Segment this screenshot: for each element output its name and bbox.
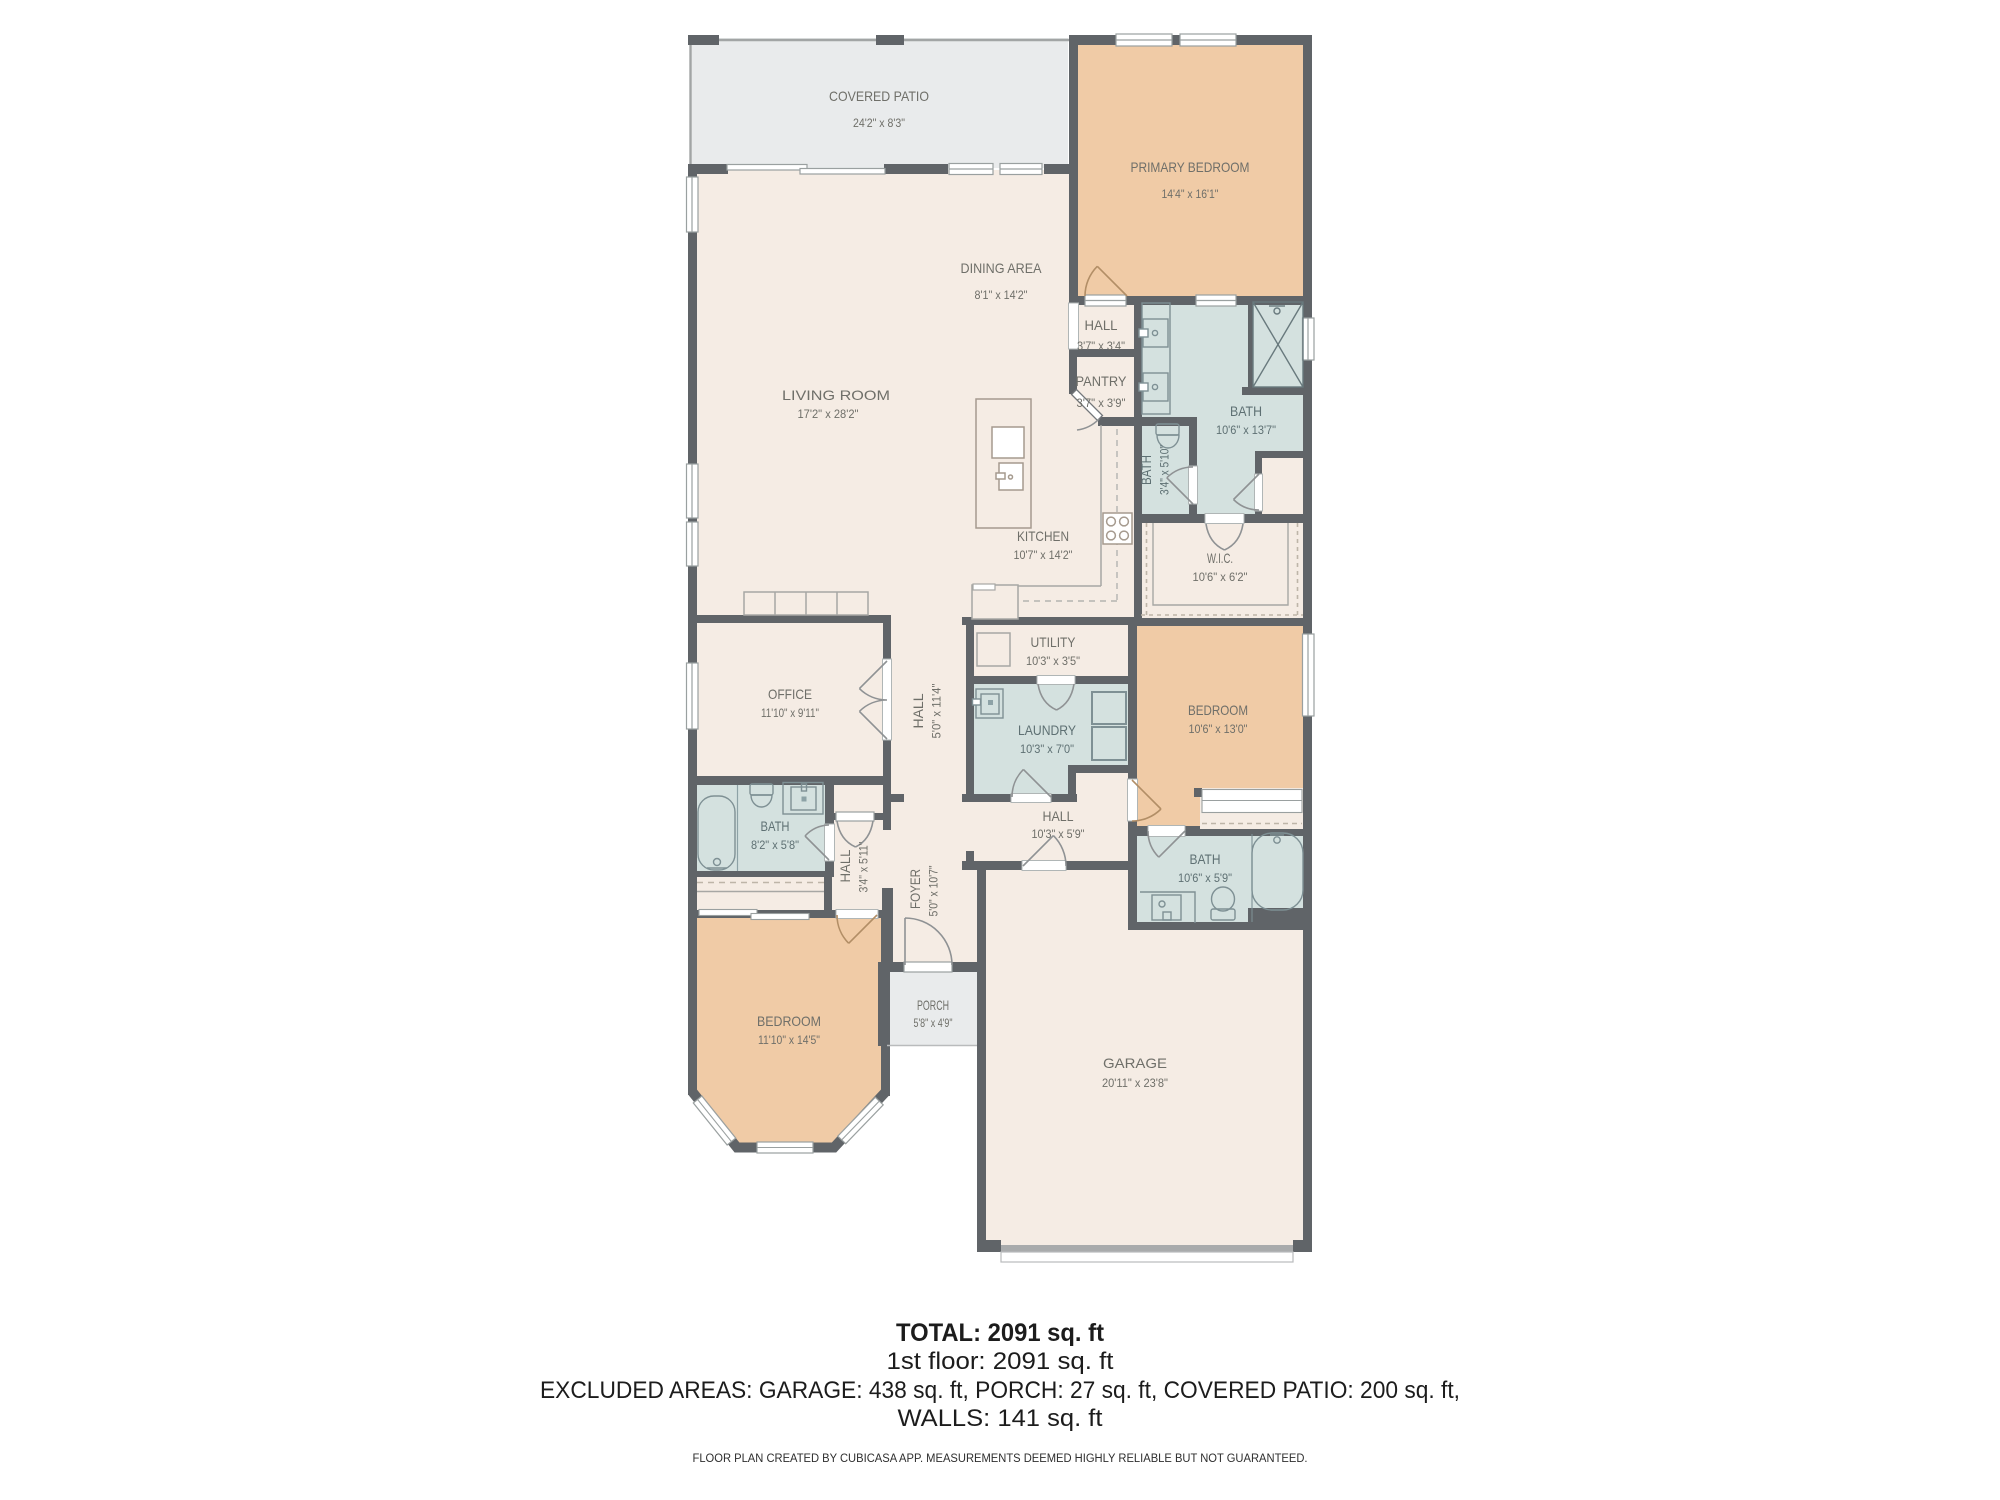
svg-text:10'3" x 3'5": 10'3" x 3'5": [1026, 654, 1080, 668]
svg-text:FLOOR PLAN CREATED BY CUBICASA: FLOOR PLAN CREATED BY CUBICASA APP. MEAS…: [693, 1453, 1308, 1465]
svg-text:PRIMARY BEDROOM: PRIMARY BEDROOM: [1131, 159, 1250, 175]
svg-text:BATH: BATH: [761, 818, 790, 834]
svg-text:8'1" x 14'2": 8'1" x 14'2": [975, 288, 1028, 302]
svg-text:10'6" x 6'2": 10'6" x 6'2": [1193, 570, 1248, 584]
svg-text:GARAGE: GARAGE: [1103, 1055, 1167, 1071]
svg-text:11'10" x 9'11": 11'10" x 9'11": [761, 706, 819, 720]
svg-text:3'7" x 3'4": 3'7" x 3'4": [1077, 339, 1125, 353]
svg-text:BATH: BATH: [1230, 403, 1262, 419]
svg-text:HALL: HALL: [837, 849, 853, 882]
svg-text:PORCH: PORCH: [917, 997, 949, 1013]
svg-text:HALL: HALL: [1085, 317, 1118, 333]
svg-text:BATH: BATH: [1138, 455, 1154, 485]
svg-text:10'3" x 5'9": 10'3" x 5'9": [1032, 827, 1085, 841]
svg-text:W.I.C.: W.I.C.: [1207, 550, 1233, 566]
svg-text:BATH: BATH: [1190, 851, 1221, 867]
svg-text:8'2" x 5'8": 8'2" x 5'8": [751, 838, 799, 852]
svg-text:10'6" x 13'0": 10'6" x 13'0": [1189, 722, 1248, 736]
svg-text:WALLS: 141 sq. ft: WALLS: 141 sq. ft: [898, 1405, 1103, 1432]
svg-text:DINING AREA: DINING AREA: [961, 260, 1043, 276]
svg-text:TOTAL: 2091 sq. ft: TOTAL: 2091 sq. ft: [896, 1319, 1105, 1347]
svg-text:LAUNDRY: LAUNDRY: [1018, 722, 1077, 738]
svg-text:HALL: HALL: [910, 693, 926, 728]
svg-text:10'6" x 5'9": 10'6" x 5'9": [1178, 871, 1232, 885]
svg-text:11'10" x 14'5": 11'10" x 14'5": [758, 1033, 820, 1047]
svg-text:3'7" x 3'9": 3'7" x 3'9": [1077, 396, 1126, 410]
svg-text:3'4" x 5'10": 3'4" x 5'10": [1158, 445, 1172, 495]
svg-text:BEDROOM: BEDROOM: [1188, 702, 1248, 718]
svg-text:10'6" x 13'7": 10'6" x 13'7": [1216, 423, 1276, 437]
svg-text:HALL: HALL: [1043, 808, 1074, 824]
svg-text:BEDROOM: BEDROOM: [757, 1013, 821, 1029]
svg-text:5'8" x 4'9": 5'8" x 4'9": [914, 1016, 953, 1030]
svg-text:PANTRY: PANTRY: [1076, 373, 1128, 389]
svg-text:LIVING ROOM: LIVING ROOM: [782, 387, 890, 403]
svg-text:14'4" x 16'1": 14'4" x 16'1": [1162, 187, 1219, 201]
svg-text:COVERED PATIO: COVERED PATIO: [829, 88, 929, 104]
svg-text:FOYER: FOYER: [907, 869, 923, 909]
svg-text:UTILITY: UTILITY: [1031, 634, 1077, 650]
svg-text:17'2" x 28'2": 17'2" x 28'2": [798, 407, 859, 421]
svg-text:10'7" x 14'2": 10'7" x 14'2": [1014, 548, 1073, 562]
svg-text:EXCLUDED AREAS: GARAGE: 438 sq: EXCLUDED AREAS: GARAGE: 438 sq. ft, PORC…: [540, 1377, 1460, 1404]
svg-text:OFFICE: OFFICE: [768, 686, 812, 702]
svg-text:1st floor: 2091 sq. ft: 1st floor: 2091 sq. ft: [887, 1348, 1114, 1375]
svg-text:5'0" x 11'4": 5'0" x 11'4": [930, 684, 944, 739]
svg-text:24'2" x 8'3": 24'2" x 8'3": [853, 116, 905, 130]
svg-text:10'3" x 7'0": 10'3" x 7'0": [1020, 742, 1074, 756]
svg-text:3'4" x 5'11": 3'4" x 5'11": [857, 842, 871, 893]
svg-text:KITCHEN: KITCHEN: [1017, 528, 1069, 544]
svg-text:5'0" x 10'7": 5'0" x 10'7": [927, 866, 941, 917]
svg-text:20'11" x 23'8": 20'11" x 23'8": [1102, 1076, 1168, 1090]
